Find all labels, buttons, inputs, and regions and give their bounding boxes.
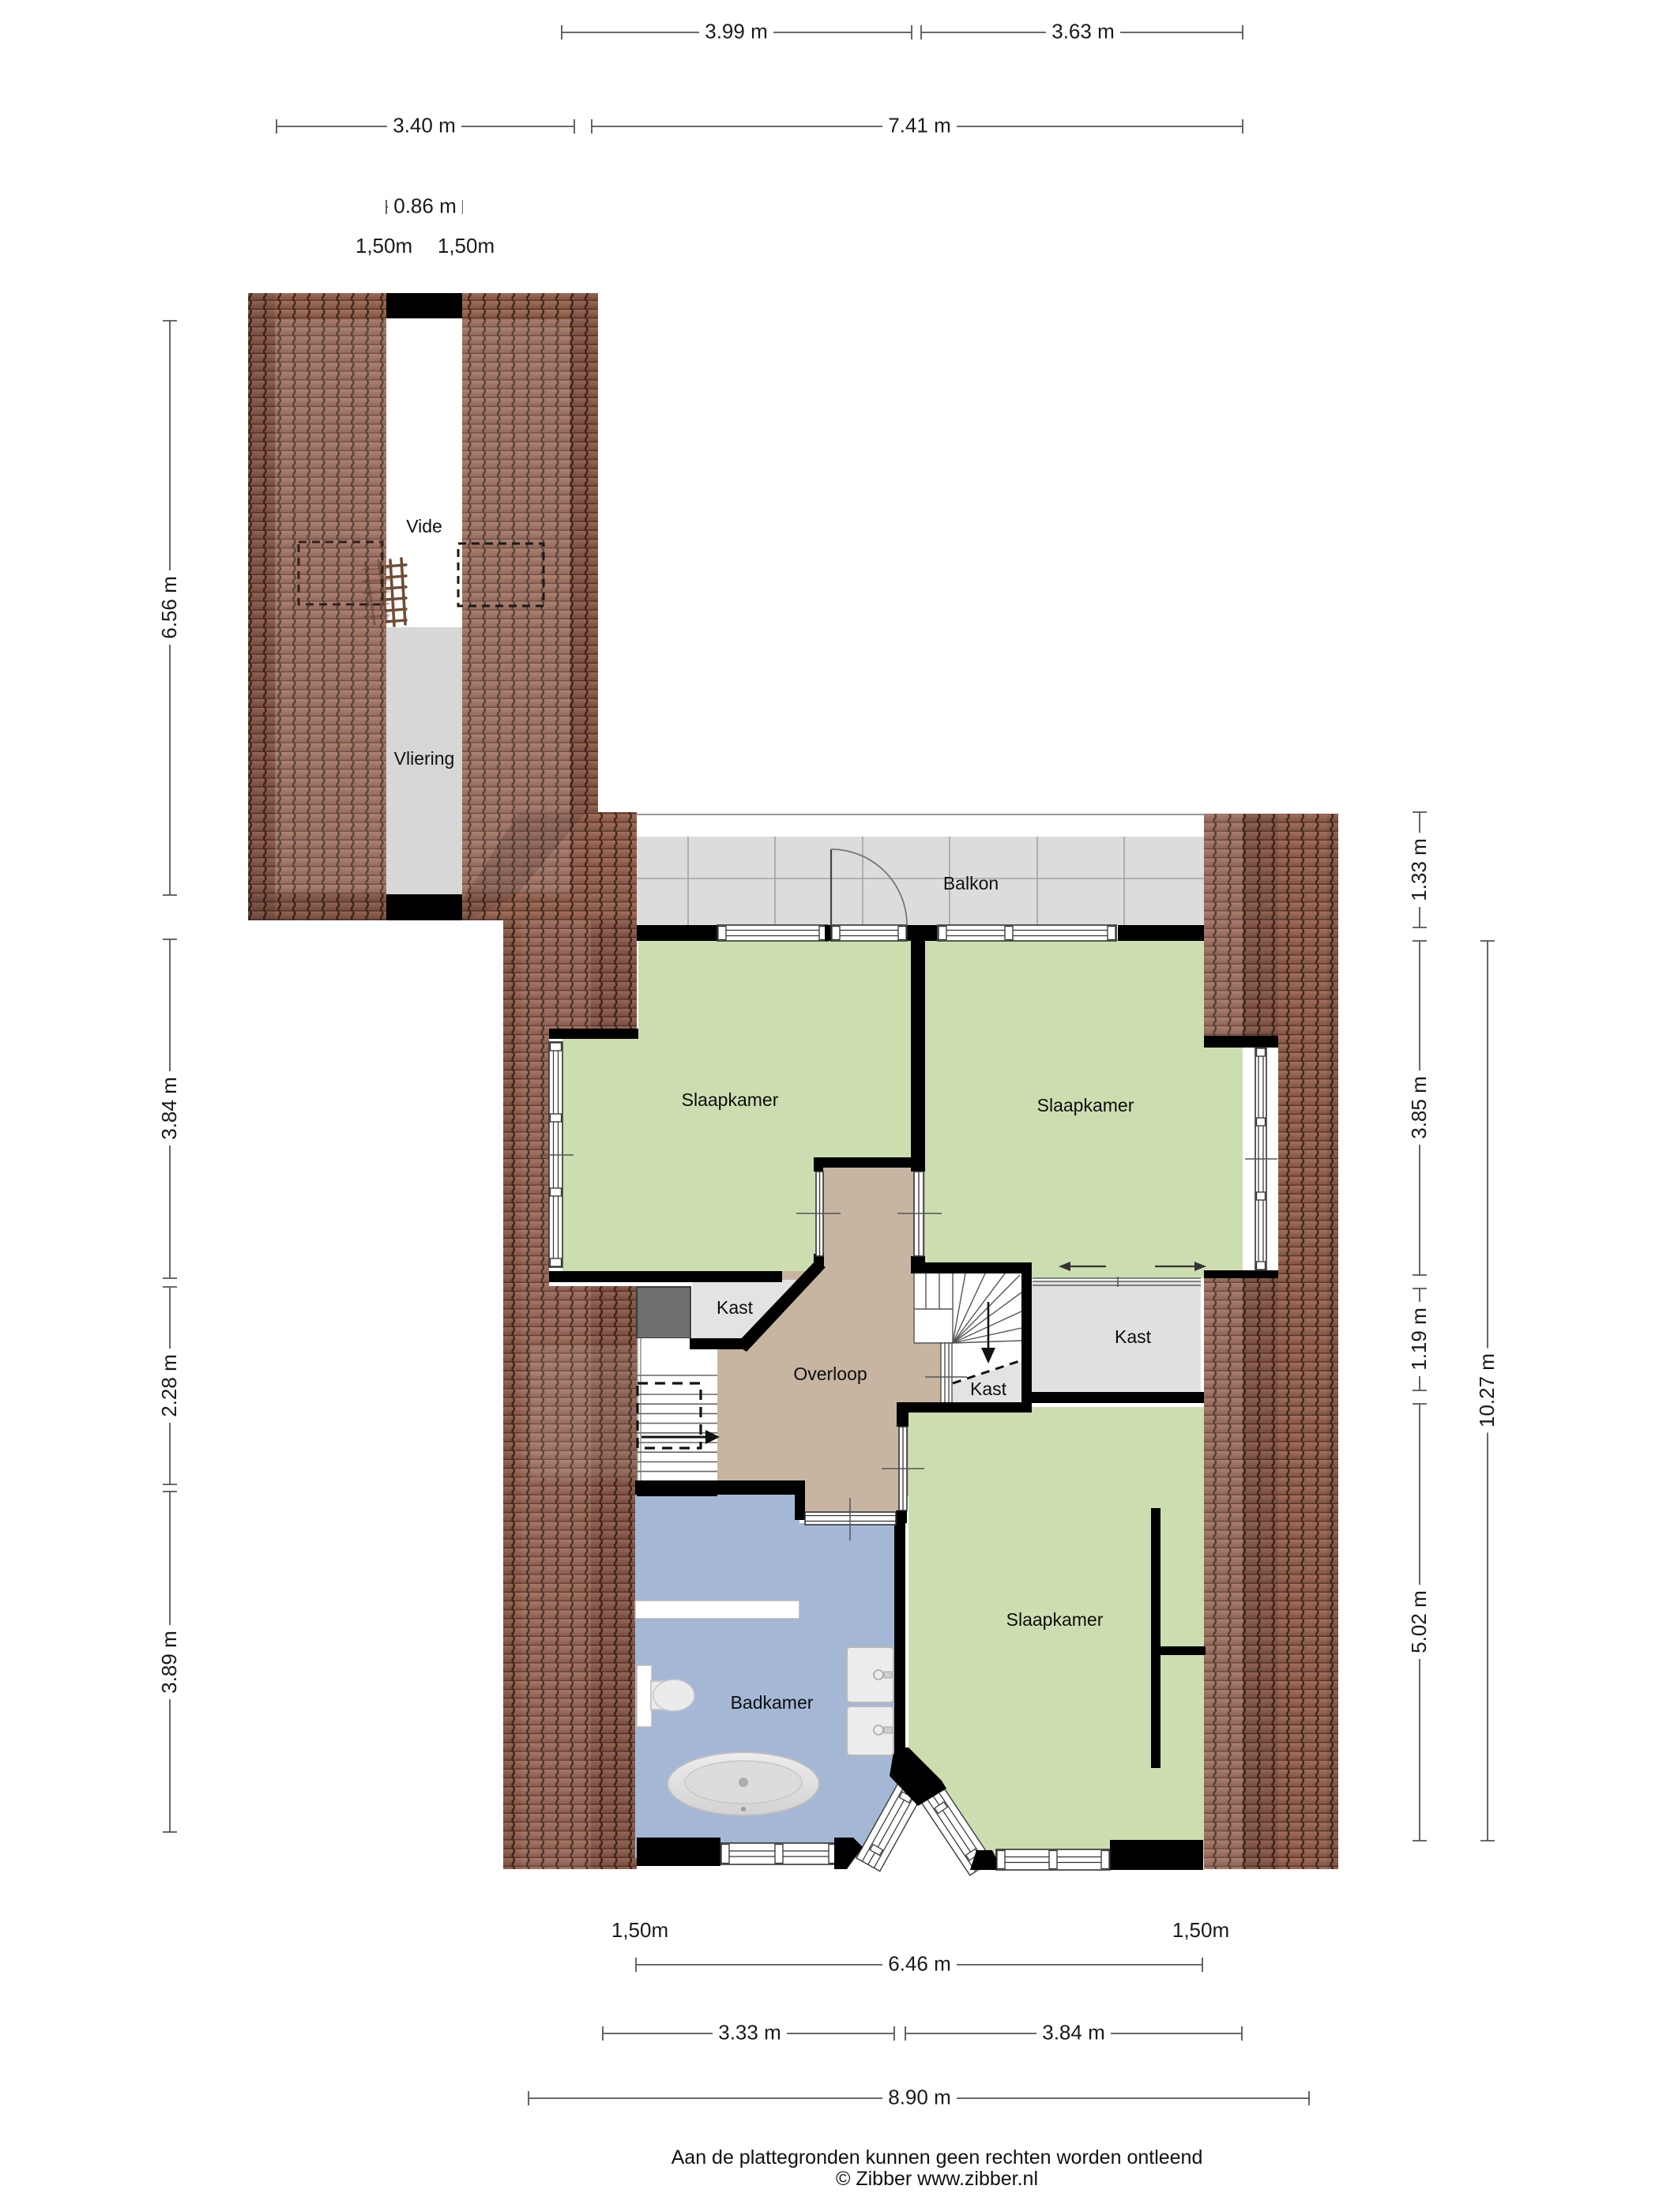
svg-text:3.99 m: 3.99 m	[705, 19, 768, 43]
svg-text:6.56 m: 6.56 m	[157, 576, 181, 639]
svg-text:7.41 m: 7.41 m	[888, 113, 951, 137]
svg-text:Vliering: Vliering	[394, 748, 455, 769]
svg-text:Kast: Kast	[970, 1379, 1007, 1399]
svg-text:3.84 m: 3.84 m	[157, 1077, 181, 1140]
svg-text:Badkamer: Badkamer	[731, 1692, 814, 1713]
svg-text:3.40 m: 3.40 m	[393, 113, 456, 137]
svg-text:8.90 m: 8.90 m	[888, 2085, 951, 2109]
svg-text:2.28 m: 2.28 m	[157, 1354, 181, 1417]
svg-text:1,50m: 1,50m	[611, 1918, 668, 1942]
svg-text:5.02 m: 5.02 m	[1407, 1590, 1431, 1653]
svg-text:Balkon: Balkon	[943, 873, 999, 893]
svg-text:6.46 m: 6.46 m	[888, 1951, 951, 1975]
svg-text:1,50m: 1,50m	[355, 234, 412, 258]
svg-text:3.85 m: 3.85 m	[1407, 1076, 1431, 1139]
svg-text:Aan de plattegronden kunnen ge: Aan de plattegronden kunnen geen rechten…	[671, 2146, 1203, 2169]
svg-text:Vide: Vide	[406, 516, 442, 536]
svg-text:Slaapkamer: Slaapkamer	[1037, 1095, 1134, 1115]
svg-text:1.19 m: 1.19 m	[1407, 1307, 1431, 1371]
svg-text:3.63 m: 3.63 m	[1051, 19, 1115, 43]
svg-text:10.27 m: 10.27 m	[1475, 1353, 1499, 1428]
svg-text:3.33 m: 3.33 m	[718, 2020, 781, 2044]
svg-text:3.84 m: 3.84 m	[1042, 2020, 1105, 2044]
svg-text:Slaapkamer: Slaapkamer	[682, 1089, 779, 1110]
svg-text:3.89 m: 3.89 m	[157, 1631, 181, 1694]
svg-text:0.86 m: 0.86 m	[393, 194, 457, 217]
svg-text:Kast: Kast	[717, 1297, 754, 1318]
svg-text:1,50m: 1,50m	[438, 234, 495, 258]
svg-text:Overloop: Overloop	[793, 1364, 867, 1384]
svg-text:Slaapkamer: Slaapkamer	[1006, 1609, 1104, 1630]
svg-text:1,50m: 1,50m	[1172, 1918, 1229, 1942]
svg-text:1.33 m: 1.33 m	[1407, 838, 1431, 901]
svg-text:Kast: Kast	[1115, 1326, 1152, 1347]
svg-text:© Zibber www.zibber.nl: © Zibber www.zibber.nl	[836, 2168, 1038, 2190]
